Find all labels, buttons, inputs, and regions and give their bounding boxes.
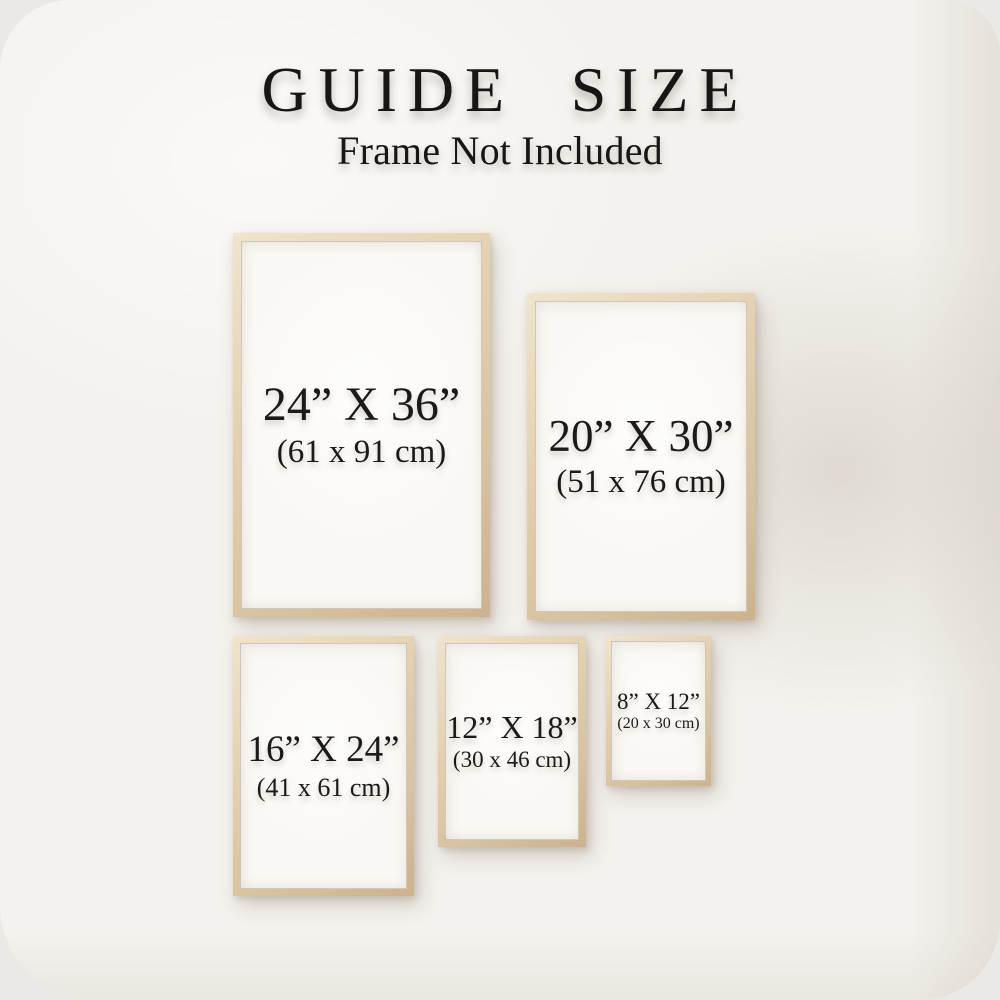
size-label-cm: (30 x 46 cm) <box>453 748 571 772</box>
frame-paper: 8” X 12” (20 x 30 cm) <box>611 641 706 781</box>
frame-16x24: 16” X 24” (41 x 61 cm) <box>233 636 414 896</box>
size-label-cm: (20 x 30 cm) <box>617 716 699 733</box>
header: GUIDE SIZE Frame Not Included <box>0 58 1000 171</box>
size-label-cm: (61 x 91 cm) <box>277 435 447 470</box>
page-subtitle: Frame Not Included <box>0 131 1000 171</box>
frame-paper: 12” X 18” (30 x 46 cm) <box>445 643 579 840</box>
page-title: GUIDE SIZE <box>11 58 1000 122</box>
size-label-cm: (51 x 76 cm) <box>556 465 726 500</box>
size-label-inches: 16” X 24” <box>247 731 399 770</box>
size-label-inches: 20” X 30” <box>549 413 734 460</box>
size-label-inches: 8” X 12” <box>617 690 700 714</box>
size-label-cm: (41 x 61 cm) <box>257 774 391 801</box>
frame-paper: 16” X 24” (41 x 61 cm) <box>240 643 407 889</box>
size-label-inches: 24” X 36” <box>263 380 460 430</box>
frame-8x12: 8” X 12” (20 x 30 cm) <box>606 636 711 786</box>
frame-24x36: 24” X 36” (61 x 91 cm) <box>233 233 490 617</box>
frame-20x30: 20” X 30” (51 x 76 cm) <box>527 293 755 620</box>
frame-paper: 20” X 30” (51 x 76 cm) <box>535 301 747 612</box>
frame-12x18: 12” X 18” (30 x 46 cm) <box>438 636 586 847</box>
size-guide-image: GUIDE SIZE Frame Not Included 24” X 36” … <box>0 0 1000 1000</box>
size-label-inches: 12” X 18” <box>446 711 578 745</box>
frame-paper: 24” X 36” (61 x 91 cm) <box>241 241 482 609</box>
